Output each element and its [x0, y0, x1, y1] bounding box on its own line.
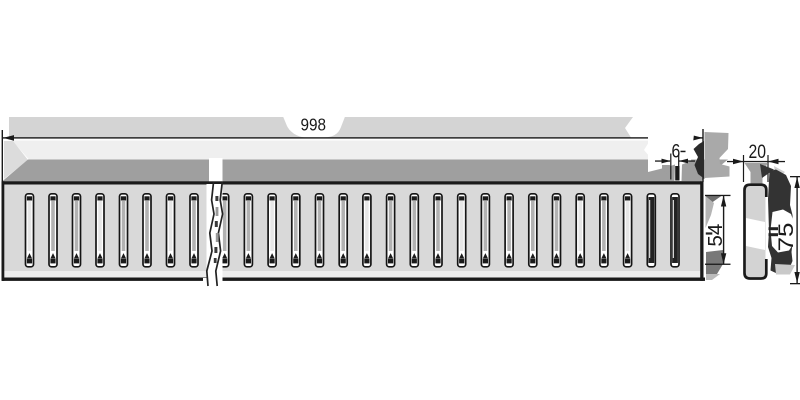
svg-text:75: 75 — [775, 223, 798, 252]
svg-text:20: 20 — [749, 142, 767, 163]
svg-text:54: 54 — [705, 224, 727, 247]
svg-text:998: 998 — [301, 115, 327, 135]
